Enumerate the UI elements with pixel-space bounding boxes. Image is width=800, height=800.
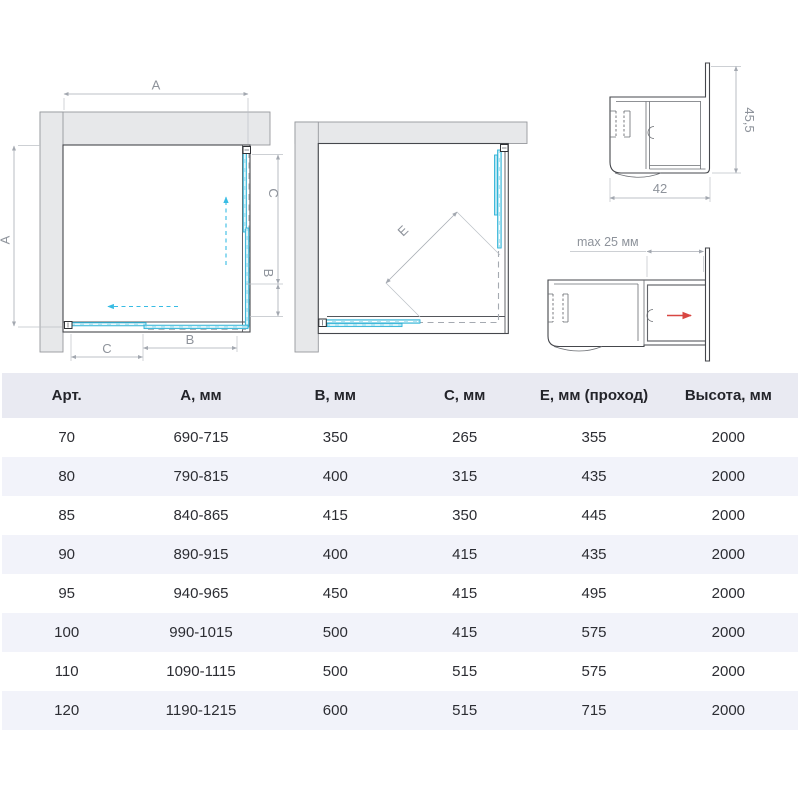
table-cell: 95 [2,574,131,613]
table-cell: 990-1015 [131,613,270,652]
table-row: 100 990-1015 500 415 575 2000 [2,613,798,652]
table-cell: 415 [271,496,400,535]
dim-label-max-adjust: max 25 мм [577,235,639,249]
table-row: 80 790-815 400 315 435 2000 [2,457,798,496]
dim-label-a-left: A [0,235,13,244]
table-cell: 265 [400,418,529,457]
dimension-lines [570,252,704,278]
table-cell: 940-965 [131,574,270,613]
table-cell: 400 [271,535,400,574]
table-cell: 110 [2,652,131,691]
table-cell: 1190-1215 [131,691,270,730]
profile-outline [548,248,710,361]
table-row: 70 690-715 350 265 355 2000 [2,418,798,457]
table-cell: 445 [529,496,658,535]
plan-view-open-diagram: E [280,60,540,370]
table-cell: 790-815 [131,457,270,496]
product-spec-sheet: A A C B B C [0,0,800,800]
dim-label-a-top: A [152,78,161,93]
col-header-e: Е, мм (проход) [529,373,658,418]
dim-label-height: 45,5 [742,107,757,132]
table-row: 90 890-915 400 415 435 2000 [2,535,798,574]
table-cell: 890-915 [131,535,270,574]
wall-profile-section-diagram: 45,5 42 [540,30,800,230]
table-cell: 500 [271,652,400,691]
adjustment-profile-diagram: max 25 мм [540,220,800,375]
table-cell: 400 [271,457,400,496]
table-cell: 2000 [659,457,798,496]
table-cell: 350 [271,418,400,457]
table-cell: 80 [2,457,131,496]
plan-view-closed-diagram: A A C B B C [0,60,290,370]
table-cell: 2000 [659,652,798,691]
table-header-row: Арт. А, мм В, мм С, мм Е, мм (проход) Вы… [2,373,798,418]
col-header-a: А, мм [131,373,270,418]
table-cell: 415 [400,574,529,613]
dim-label-b-bottom: B [186,332,195,347]
table-cell: 840-865 [131,496,270,535]
table-cell: 450 [271,574,400,613]
table-cell: 575 [529,652,658,691]
table-cell: 350 [400,496,529,535]
table-cell: 90 [2,535,131,574]
col-header-height: Высота, мм [659,373,798,418]
size-spec-table: Арт. А, мм В, мм С, мм Е, мм (проход) Вы… [2,373,798,730]
table-cell: 435 [529,535,658,574]
table-cell: 120 [2,691,131,730]
profile-outline [610,63,710,177]
col-header-b: В, мм [271,373,400,418]
table-cell: 315 [400,457,529,496]
dim-label-b-right: B [261,269,276,278]
table-cell: 2000 [659,535,798,574]
table-cell: 690-715 [131,418,270,457]
table-cell: 415 [400,535,529,574]
table-cell: 600 [271,691,400,730]
table-cell: 2000 [659,613,798,652]
enclosure-frame [318,144,508,334]
table-cell: 355 [529,418,658,457]
table-cell: 515 [400,652,529,691]
table-cell: 2000 [659,418,798,457]
table-cell: 1090-1115 [131,652,270,691]
table-cell: 85 [2,496,131,535]
table-cell: 70 [2,418,131,457]
table-cell: 415 [400,613,529,652]
table-row: 110 1090-1115 500 515 575 2000 [2,652,798,691]
table-cell: 2000 [659,691,798,730]
table-row: 120 1190-1215 600 515 715 2000 [2,691,798,730]
table-cell: 715 [529,691,658,730]
table-row: 95 940-965 450 415 495 2000 [2,574,798,613]
table-cell: 2000 [659,574,798,613]
col-header-art: Арт. [2,373,131,418]
col-header-c: С, мм [400,373,529,418]
table-cell: 435 [529,457,658,496]
table-cell: 100 [2,613,131,652]
table-row: 85 840-865 415 350 445 2000 [2,496,798,535]
dim-label-c-right: C [266,188,281,197]
dim-label-c-bottom: C [102,341,111,356]
table-cell: 500 [271,613,400,652]
enclosure-frame [63,145,250,332]
table-cell: 495 [529,574,658,613]
table-cell: 575 [529,613,658,652]
table-cell: 2000 [659,496,798,535]
table-cell: 515 [400,691,529,730]
dim-label-width: 42 [653,181,667,196]
